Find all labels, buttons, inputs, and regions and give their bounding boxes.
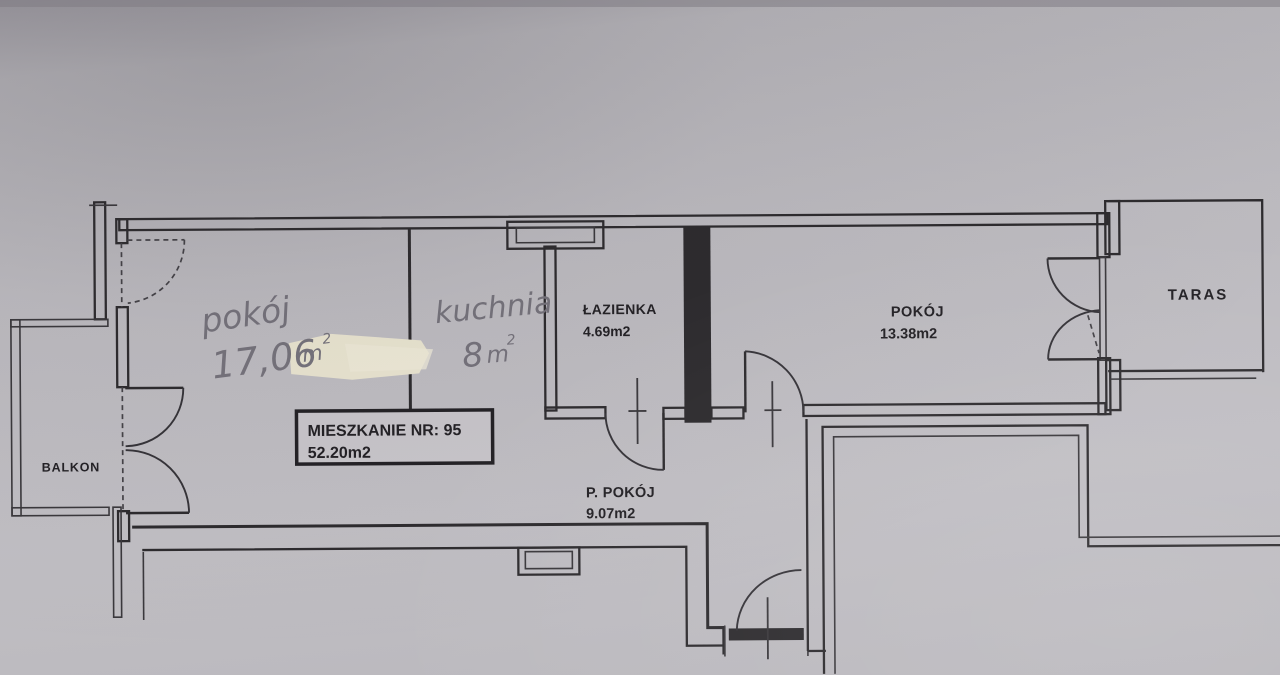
photo-glow [0,0,1280,675]
floor-plan-drawing: pokój 17,06 m 2 kuchnia 8 m 2 BALKON ŁAZ… [0,0,1280,675]
floor-plan-photo: pokój 17,06 m 2 kuchnia 8 m 2 BALKON ŁAZ… [0,0,1280,675]
photo-top-edge [0,0,1280,7]
